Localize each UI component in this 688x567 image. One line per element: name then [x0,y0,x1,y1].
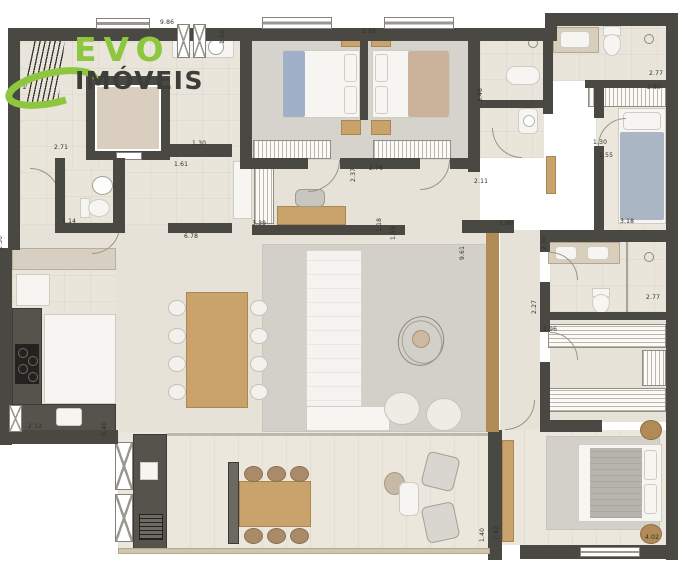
nightstand-round [640,420,662,440]
shower-head-icon [644,252,654,262]
window [384,17,454,29]
sliding-glass-line [167,433,488,436]
wall [488,430,502,560]
dining-chair [168,328,186,344]
sink-basin [523,115,535,127]
kitchen-island [44,314,116,404]
dining-chair [250,328,268,344]
glass-door-panel [115,442,133,490]
burner [18,364,28,374]
pouf-armchair [426,398,462,431]
office-wardrobe [254,161,274,224]
floor-plan: 9.861.502.951.712.711.301.611.141.366.78… [0,0,688,567]
dimension-label: 7.42 [494,526,500,540]
window [9,405,22,432]
balcony-chair [244,528,263,544]
dimension-label: 6.78 [184,234,198,240]
dimension-label: 1.61 [174,162,188,168]
glass-door-panel [115,494,133,542]
closet-wardrobe [548,388,666,412]
master-pillow [644,484,657,514]
dimension-label: 2.76 [369,166,383,172]
dimension-label: 1.30 [593,140,607,146]
barbecue-grill [139,514,163,540]
dimension-label: 2.95 [362,29,376,35]
dimension-label: 0.40 [102,422,108,436]
fridge [16,274,50,306]
dimension-label: 2.96 [543,327,557,333]
wall [480,100,544,108]
dimension-label: 3.18 [620,219,634,225]
nightstand [341,120,361,135]
dimension-label: 1.36 [0,236,4,250]
dining-chair [250,356,268,372]
master-sideboard [502,440,514,542]
balcony-chair [267,528,286,544]
bed-1-pillow [344,54,357,82]
dining-chair [168,356,186,372]
shower-head-icon [644,34,654,44]
bed-1-blue-throw [283,51,305,117]
closet-wardrobe [642,350,666,386]
wall [594,88,604,118]
dimension-label: 1.18 [377,218,383,232]
wall [240,158,308,169]
dining-chair [250,384,268,400]
wall [540,282,550,332]
dimension-label: 1.55 [391,226,397,240]
shower-glass [626,242,628,312]
wall [550,13,678,26]
evo-imoveis-logo: EVO IMÓVEIS [4,34,194,112]
wall [360,28,368,120]
wall [550,312,678,320]
wall [450,158,480,169]
dimension-label: 2.12 [28,424,42,430]
dimension-label: 2.27 [532,300,538,314]
dimension-label: 1.55 [599,153,613,159]
balcony-glass-rail [118,548,490,554]
bedroom3-door-leaf [546,156,556,194]
logo-brand-text: EVO [74,34,171,66]
dimension-label: 1.30 [192,141,206,147]
master-pillow [644,450,657,480]
bed-2-tan-duvet [408,51,449,117]
nightstand [371,120,391,135]
toilet-bowl [88,199,110,217]
dining-chair [168,300,186,316]
wall [543,28,553,114]
dimension-label: 1.14 [62,219,76,225]
sink [587,246,609,260]
burner [28,372,38,382]
office-cabinet [233,161,252,219]
dimension-label: 3.39 [252,221,266,227]
office-desk [277,206,346,225]
dimension-label: 9.61 [460,246,466,260]
window [96,18,150,29]
wall [540,362,550,422]
grill-sink [140,462,158,480]
bed-1-pillow [344,86,357,114]
dining-chair [168,384,186,400]
wardrobe-bedroom1 [253,140,331,159]
dimension-label: 3.48 [478,88,484,102]
dimension-label: 4.02 [645,535,659,541]
lavabo-sink [92,176,113,195]
burner [28,356,38,366]
wood-panel-wall [486,233,499,432]
bed-3-duvet [620,132,664,220]
wall [540,420,602,432]
bathtub [506,66,540,85]
dimension-label: 1.50 [220,30,226,44]
bed-3-pillow [623,112,661,130]
wall [168,223,232,233]
dimension-label: 9.86 [160,20,174,26]
dimension-label: 2.77 [649,71,663,77]
dimension-label: 2.77 [646,295,660,301]
balcony-chair [244,466,263,482]
balcony-chair [267,466,286,482]
dimension-label: 1.40 [480,528,486,542]
dimension-label: 2.80 [647,85,661,91]
bed-2-pillow [375,54,388,82]
wall [666,13,678,560]
plant-pot [412,330,430,348]
balcony-chair [290,528,309,544]
master-bed-duvet [590,448,642,518]
dining-table [186,292,248,408]
window [580,547,640,557]
sofa [306,250,362,430]
wardrobe-bedroom2 [373,140,451,159]
window [262,17,332,29]
sink [560,31,590,48]
dimension-label: 2.71 [54,145,68,151]
balcony-planter [228,462,239,544]
dimension-label: 1.00 [499,221,513,227]
pouf-armchair [384,392,420,425]
dimension-label: 2.37 [351,168,357,182]
kitchen-sink [56,408,82,426]
dining-chair [250,300,268,316]
bed-2-pillow [375,86,388,114]
dimension-label: 2.70 [542,236,548,250]
wall [240,28,252,160]
balcony-chair [290,466,309,482]
dimension-label: 2.11 [474,179,488,185]
lounge-side-table [399,482,419,516]
burner [18,348,28,358]
wall [113,158,125,233]
sofa-chaise [306,406,390,431]
logo-sub-text: IMÓVEIS [75,68,204,93]
living-rug [262,244,494,432]
wall [540,230,678,242]
balcony-table [239,481,311,527]
window [193,24,206,58]
